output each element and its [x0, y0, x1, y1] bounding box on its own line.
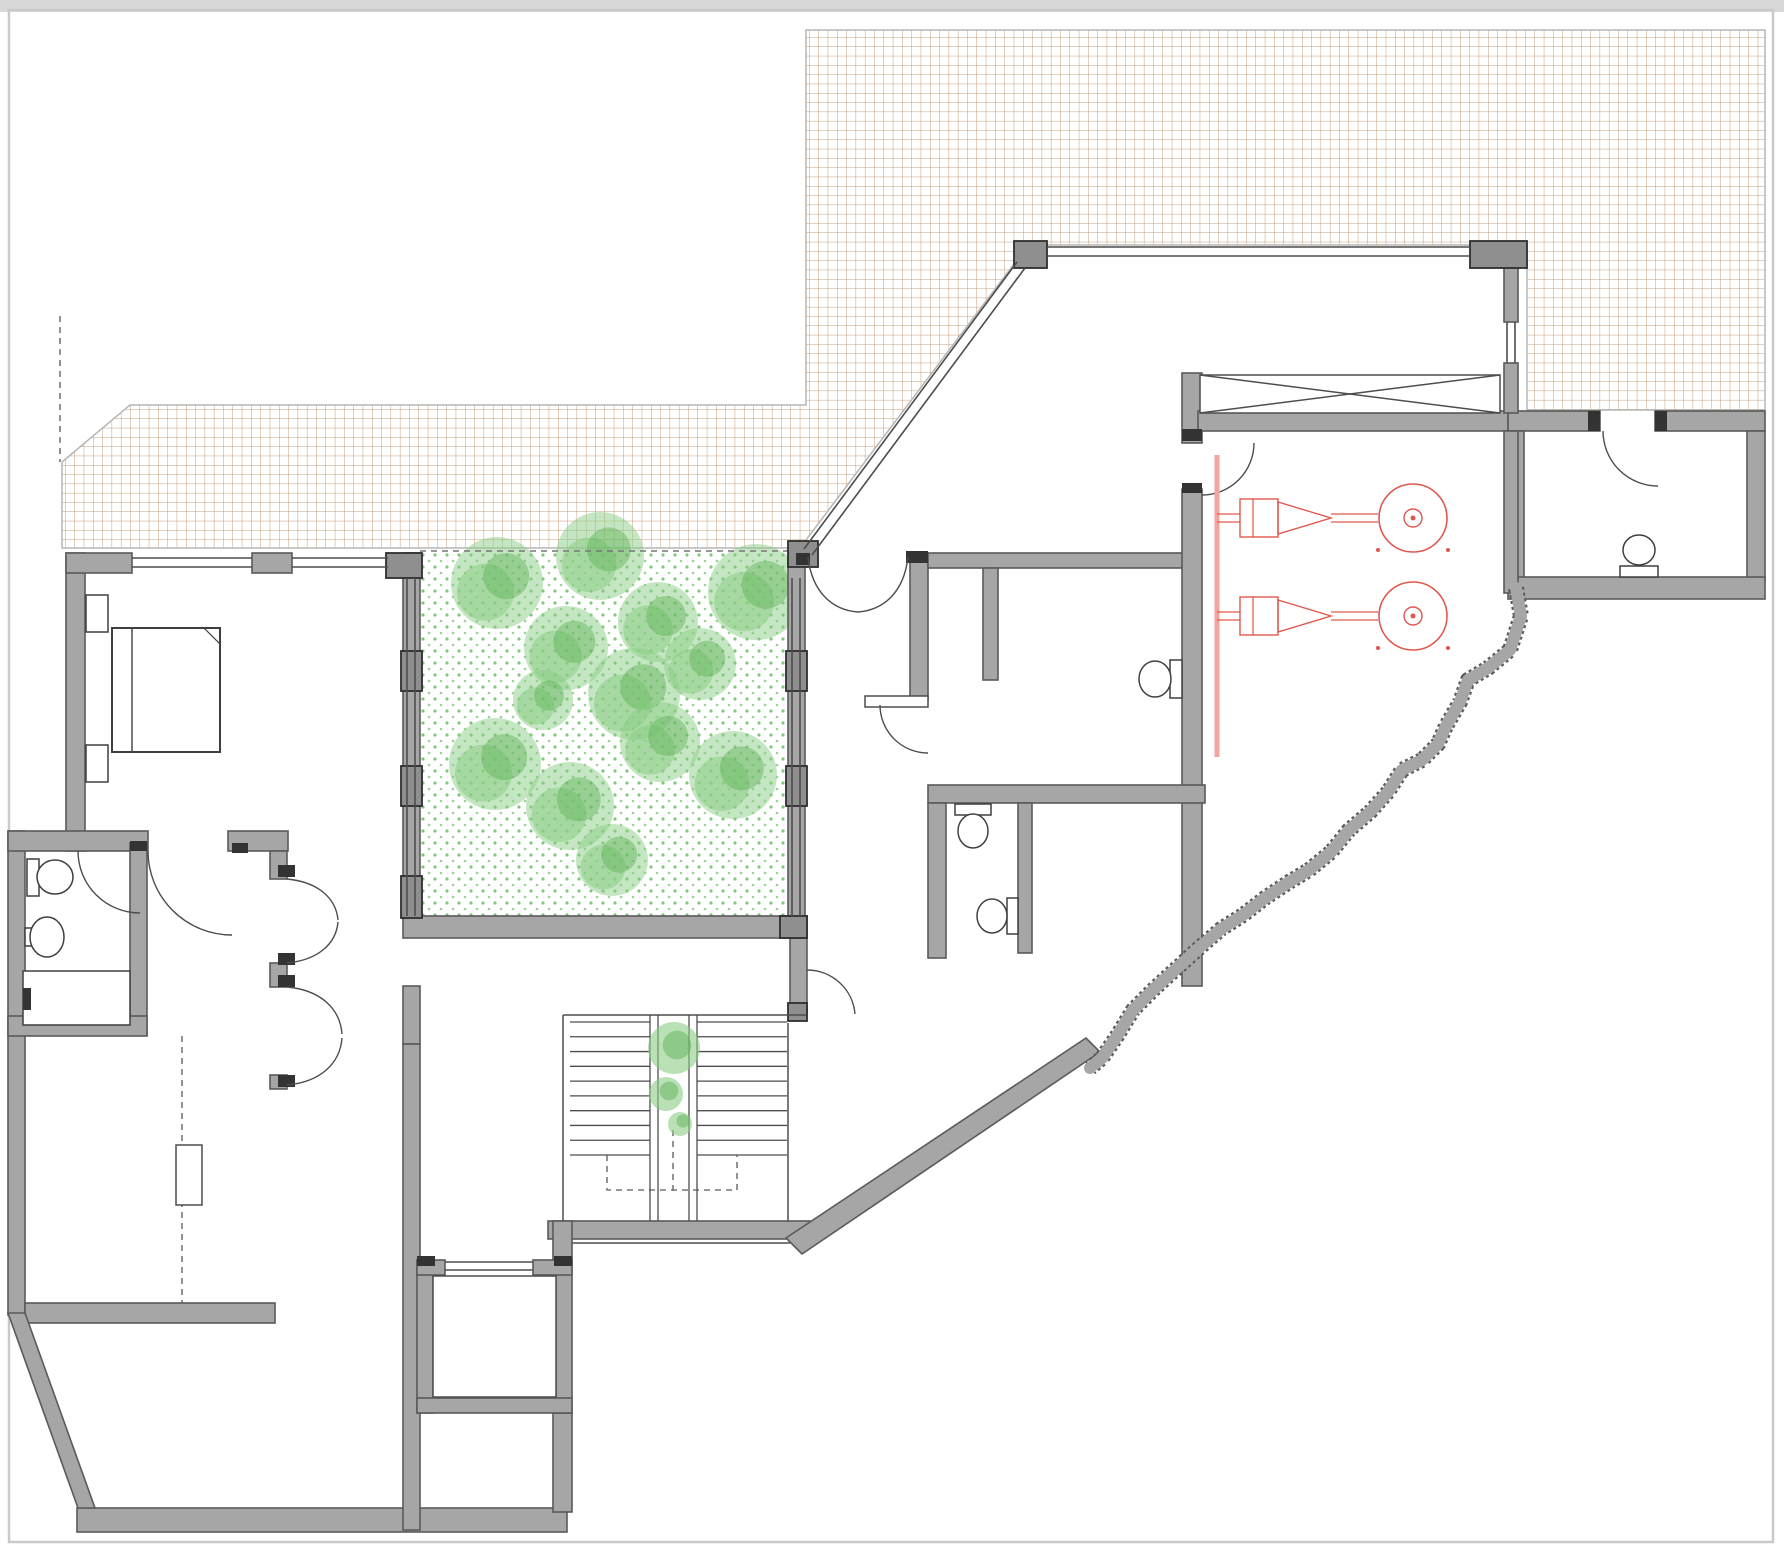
shower-valve — [23, 988, 31, 1010]
fan-unit-2-dot — [1376, 646, 1380, 650]
tree-core — [742, 561, 790, 609]
tree-core — [689, 641, 725, 677]
tree-10 — [620, 702, 700, 782]
stair-door-block — [788, 1003, 807, 1021]
nightstand-1 — [86, 595, 108, 632]
trb-bottom-wall — [1508, 577, 1765, 599]
fan-unit-2-dot — [1446, 646, 1450, 650]
fan-unit-2-cone — [1278, 600, 1331, 632]
elev-bottom — [417, 1398, 572, 1413]
wall-cap-1 — [906, 551, 928, 563]
trb-right-wall — [1747, 431, 1765, 581]
wc-left-wall — [928, 803, 946, 958]
floor-plan-drawing — [0, 0, 1784, 1552]
court-corner-br — [780, 916, 807, 938]
shower-tray — [23, 971, 130, 1025]
tree-core — [646, 596, 686, 636]
toilet-hall-bowl — [1139, 661, 1171, 697]
stair-bottom-wall — [548, 1221, 810, 1239]
wall-cap-11 — [554, 1256, 572, 1266]
entry-door-b — [858, 557, 908, 612]
hall-top-wall — [928, 553, 1200, 568]
bidet-bath-left-bowl — [30, 917, 64, 957]
mech-left-wall-b — [1182, 489, 1202, 986]
bottom-wall — [77, 1508, 567, 1532]
bidet-bath-left — [25, 917, 64, 957]
window-bedroom-top-1 — [132, 558, 252, 567]
wall-cap-9 — [232, 843, 248, 853]
fan-unit-2 — [1217, 582, 1450, 650]
tree-core — [534, 681, 564, 711]
stair-plant-core — [676, 1114, 689, 1127]
wall-cap-10 — [417, 1256, 435, 1266]
double-door-2b — [287, 1038, 342, 1085]
stair-plant-core — [663, 1031, 692, 1060]
hall-bottom-wall — [928, 785, 1205, 803]
stair-plant-core — [660, 1082, 679, 1101]
toilet-bath-left-bowl — [37, 860, 73, 894]
toilet-wc-1-bowl — [958, 814, 988, 848]
mechanical-equipment — [1217, 455, 1450, 757]
wall-cap-13 — [1655, 411, 1667, 431]
wc-partition — [1018, 803, 1032, 953]
window-bedroom-top-2 — [292, 558, 388, 567]
fan-unit-1-dot — [1446, 548, 1450, 552]
fan-unit-1-dot — [1376, 548, 1380, 552]
window-right-upper — [1507, 322, 1515, 363]
bath-right-wall — [130, 843, 147, 1035]
band-bottom-wall-b — [1508, 411, 1600, 431]
toilet-wc-1 — [955, 804, 991, 848]
double-door-1a — [287, 879, 338, 920]
elevator-cab — [433, 1276, 556, 1397]
fan-unit-1-box — [1240, 499, 1278, 537]
band-bottom-wall-a — [1198, 411, 1508, 431]
top-right-corner-column — [1470, 241, 1527, 268]
column-marker — [176, 1145, 202, 1205]
ext-left-upper — [66, 553, 85, 851]
tree-core — [481, 734, 527, 780]
tree-core — [720, 746, 764, 790]
tree-11 — [689, 731, 777, 819]
wall-cap-5 — [278, 953, 295, 965]
wall-cap-12 — [1588, 411, 1600, 431]
door-terrace-bath — [1603, 431, 1658, 486]
tree-12 — [576, 824, 648, 896]
toilet-hall — [1139, 660, 1182, 698]
entry-right-wall — [910, 553, 928, 700]
fan-unit-1-axis — [1411, 516, 1416, 521]
wall-cap-8 — [130, 841, 147, 851]
door-hall-inner — [880, 705, 928, 753]
tree-core — [553, 621, 595, 663]
fan-unit-1 — [1217, 484, 1450, 552]
tree-core — [601, 837, 637, 873]
bedroom-bottom-wall — [8, 831, 148, 851]
mech-right-wall — [1504, 431, 1518, 593]
toilet-wc-2-bowl — [977, 899, 1007, 933]
elevator-door — [445, 1262, 533, 1270]
window-top-band — [1047, 247, 1470, 256]
toilet-wc-2-tank — [1007, 898, 1018, 934]
tree-7 — [664, 628, 736, 700]
mullion-left-2 — [401, 766, 422, 806]
stair-walk-loop — [607, 1155, 737, 1190]
double-door-2a — [287, 987, 342, 1034]
fan-unit-1-cone — [1278, 502, 1331, 534]
toilet-top-right-tank — [1620, 566, 1658, 577]
court-left-wall-a — [403, 553, 420, 920]
elevator-connector — [553, 1413, 572, 1512]
tree-core — [557, 777, 601, 821]
tree-13 — [513, 670, 573, 730]
glass-corner-top — [1014, 241, 1047, 268]
elev-right — [556, 1260, 572, 1413]
mullion-right-1 — [786, 651, 807, 691]
wall-cap-4 — [278, 865, 295, 877]
lower-left-mid-wall — [25, 1303, 275, 1323]
court-bottom-wall — [403, 916, 807, 938]
mullion-right-2 — [786, 766, 807, 806]
tree-core — [483, 553, 529, 599]
hall-half-wall — [865, 696, 928, 707]
fan-unit-2-box — [1240, 597, 1278, 635]
court-right-wall — [788, 553, 805, 918]
mullion-left-1 — [401, 651, 422, 691]
ext-left-lower — [8, 831, 25, 1315]
tree-core — [587, 527, 631, 571]
wall-cap-3 — [1182, 483, 1202, 493]
toilet-bath-left — [27, 859, 73, 896]
tree-core — [648, 716, 688, 756]
band-bottom-wall-c — [1655, 411, 1765, 431]
bedroom-top-block-2 — [252, 553, 292, 573]
court-left-wall-b — [403, 986, 420, 1044]
stairwell — [570, 1015, 787, 1221]
bed — [112, 628, 220, 752]
tree-2 — [556, 512, 644, 600]
right-wall-upper-a — [1504, 268, 1518, 322]
curved-site-wall — [1090, 588, 1521, 1068]
bed-outline — [112, 628, 220, 752]
wall-cap-2 — [1182, 429, 1202, 441]
door-mech-room — [1202, 443, 1254, 495]
shower — [23, 971, 130, 1025]
court-corner-tl — [386, 553, 422, 578]
wall-cap-7 — [278, 1075, 295, 1087]
door-bedroom — [148, 851, 232, 935]
mullion-left-3 — [401, 876, 422, 918]
toilet-top-right-bowl — [1623, 535, 1655, 565]
floor-plan-page — [0, 0, 1784, 1552]
wall-cap-6 — [278, 975, 295, 987]
toilet-top-right — [1620, 535, 1658, 577]
door-stair-hall — [807, 970, 855, 1014]
fan-unit-2-axis — [1411, 614, 1416, 619]
bottom-right-diagonal-wall — [786, 1038, 1100, 1254]
nightstand-2 — [86, 745, 108, 782]
toilet-wc-2 — [977, 898, 1018, 934]
bedroom-top-block-1 — [66, 553, 132, 573]
right-wall-upper-b — [1504, 363, 1518, 413]
lower-left-diagonal-wall — [8, 1313, 95, 1508]
hall-partition — [983, 568, 998, 680]
elev-left — [417, 1260, 433, 1413]
toilet-hall-tank — [1170, 660, 1182, 698]
